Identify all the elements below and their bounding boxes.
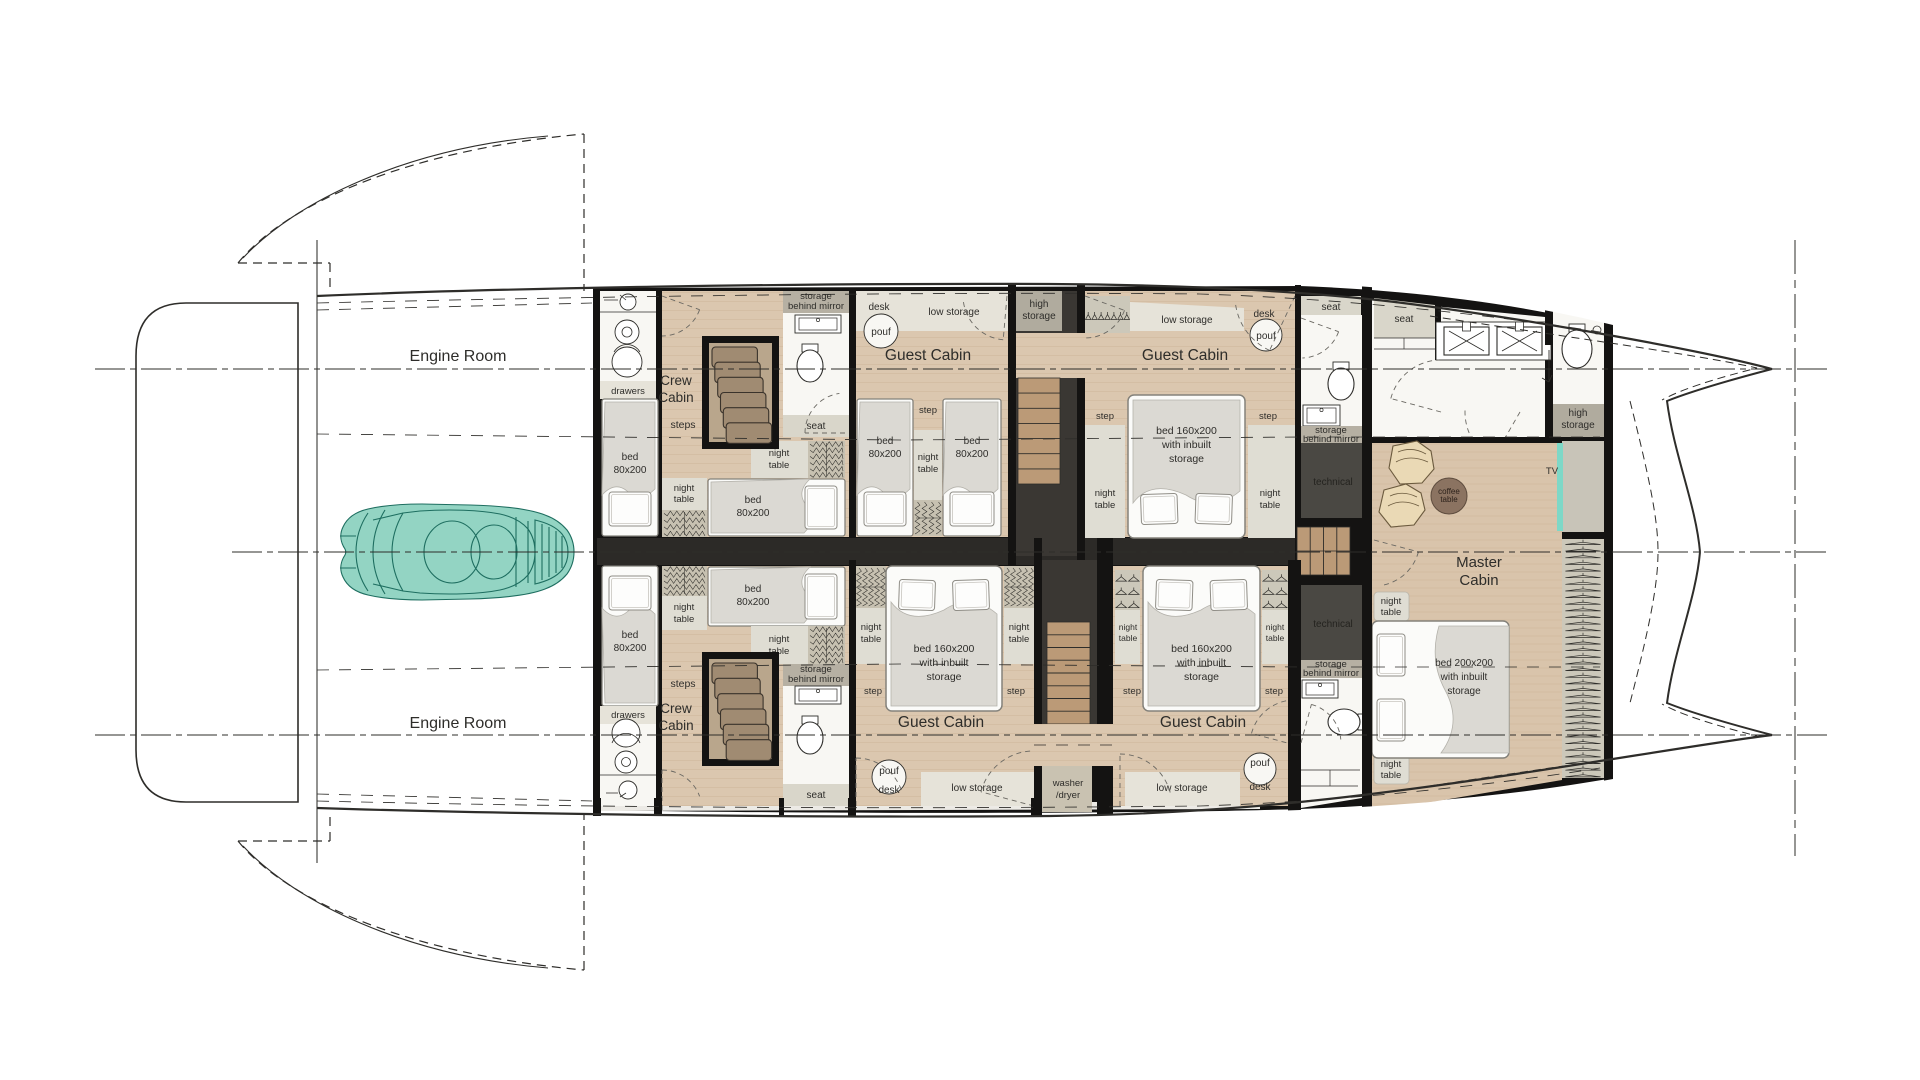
svg-text:Cabin: Cabin [1459,572,1498,589]
svg-text:behind mirror: behind mirror [788,301,844,312]
svg-text:with inbuilt: with inbuilt [918,657,968,669]
svg-text:bed: bed [745,584,762,595]
svg-text:storage: storage [1022,311,1056,322]
svg-text:night: night [1260,488,1281,499]
svg-text:table: table [861,634,882,645]
svg-text:bed 160x200: bed 160x200 [1171,643,1232,655]
svg-text:night: night [1009,622,1030,633]
svg-text:steps: steps [670,419,695,431]
svg-text:night: night [861,622,882,633]
svg-text:night: night [1095,488,1116,499]
svg-text:seat: seat [807,421,826,432]
svg-text:80x200: 80x200 [869,449,902,460]
svg-text:Guest Cabin: Guest Cabin [1142,347,1228,364]
svg-text:Master: Master [1456,554,1502,571]
svg-text:step: step [864,686,882,697]
svg-text:night: night [1119,622,1138,632]
svg-text:Crew: Crew [660,701,692,716]
svg-text:step: step [1123,686,1141,697]
svg-text:storage: storage [1169,453,1204,465]
svg-text:night: night [674,483,695,494]
svg-text:table: table [674,494,695,505]
svg-text:bed: bed [745,495,762,506]
svg-text:desk: desk [868,302,890,313]
svg-text:table: table [1381,770,1402,781]
svg-text:Engine Room: Engine Room [410,348,507,365]
svg-text:80x200: 80x200 [737,508,770,519]
svg-text:Guest Cabin: Guest Cabin [1160,714,1246,731]
svg-text:bed: bed [964,436,981,447]
svg-text:Guest Cabin: Guest Cabin [885,347,971,364]
svg-text:high: high [1030,299,1049,310]
svg-text:table: table [918,464,939,475]
svg-text:with inbuilt: with inbuilt [1161,439,1211,451]
svg-text:TV: TV [1546,466,1559,477]
svg-text:80x200: 80x200 [614,643,647,654]
svg-text:table: table [1095,500,1116,511]
svg-text:washer: washer [1052,778,1084,789]
svg-text:table: table [1440,495,1458,504]
svg-text:night: night [674,602,695,613]
svg-text:behind mirror: behind mirror [1303,668,1359,679]
svg-text:storage: storage [1184,671,1219,683]
svg-text:80x200: 80x200 [614,465,647,476]
svg-text:night: night [1266,622,1285,632]
svg-text:high: high [1569,408,1588,419]
svg-text:80x200: 80x200 [737,597,770,608]
svg-text:night: night [1381,759,1402,770]
svg-text:bed: bed [622,630,639,641]
svg-text:Guest Cabin: Guest Cabin [898,714,984,731]
svg-text:Engine Room: Engine Room [410,715,507,732]
svg-text:night: night [918,452,939,463]
svg-text:seat: seat [1322,302,1341,313]
svg-text:step: step [919,405,937,416]
svg-text:desk: desk [1249,782,1271,793]
svg-text:pouf: pouf [1256,331,1276,342]
svg-text:night: night [769,634,790,645]
svg-text:low storage: low storage [928,307,980,318]
svg-text:table: table [769,460,790,471]
svg-text:behind mirror: behind mirror [788,674,844,685]
svg-text:drawers: drawers [611,386,645,397]
svg-text:desk: desk [878,785,900,796]
svg-text:pouf: pouf [871,327,891,338]
svg-text:technical: technical [1313,619,1352,630]
svg-text:steps: steps [670,678,695,690]
svg-text:storage: storage [1447,686,1481,697]
svg-text:table: table [1381,607,1402,618]
svg-text:table: table [1266,633,1285,643]
svg-text:/dryer: /dryer [1056,790,1080,801]
svg-text:Crew: Crew [660,373,692,388]
svg-text:low storage: low storage [1156,783,1208,794]
svg-text:with inbuilt: with inbuilt [1176,657,1226,669]
svg-text:night: night [1381,596,1402,607]
svg-text:pouf: pouf [1250,758,1270,769]
svg-text:80x200: 80x200 [956,449,989,460]
svg-text:storage: storage [1561,420,1595,431]
svg-text:with inbuilt: with inbuilt [1440,672,1488,683]
svg-text:technical: technical [1313,477,1352,488]
svg-text:bed 160x200: bed 160x200 [914,643,975,655]
svg-text:table: table [1009,634,1030,645]
svg-text:Cabin: Cabin [658,390,693,405]
svg-text:step: step [1096,411,1114,422]
svg-text:storage: storage [926,671,961,683]
svg-text:bed 160x200: bed 160x200 [1156,425,1217,437]
svg-text:step: step [1265,686,1283,697]
svg-text:desk: desk [1253,309,1275,320]
svg-text:night: night [769,448,790,459]
svg-text:bed: bed [622,452,639,463]
svg-text:table: table [1260,500,1281,511]
svg-text:table: table [1119,633,1138,643]
svg-text:bed: bed [877,436,894,447]
svg-text:table: table [674,614,695,625]
svg-text:low storage: low storage [951,783,1003,794]
svg-text:seat: seat [1395,314,1414,325]
svg-text:seat: seat [807,790,826,801]
svg-text:low storage: low storage [1161,315,1213,326]
svg-text:Cabin: Cabin [658,718,693,733]
svg-text:step: step [1259,411,1277,422]
svg-text:step: step [1007,686,1025,697]
